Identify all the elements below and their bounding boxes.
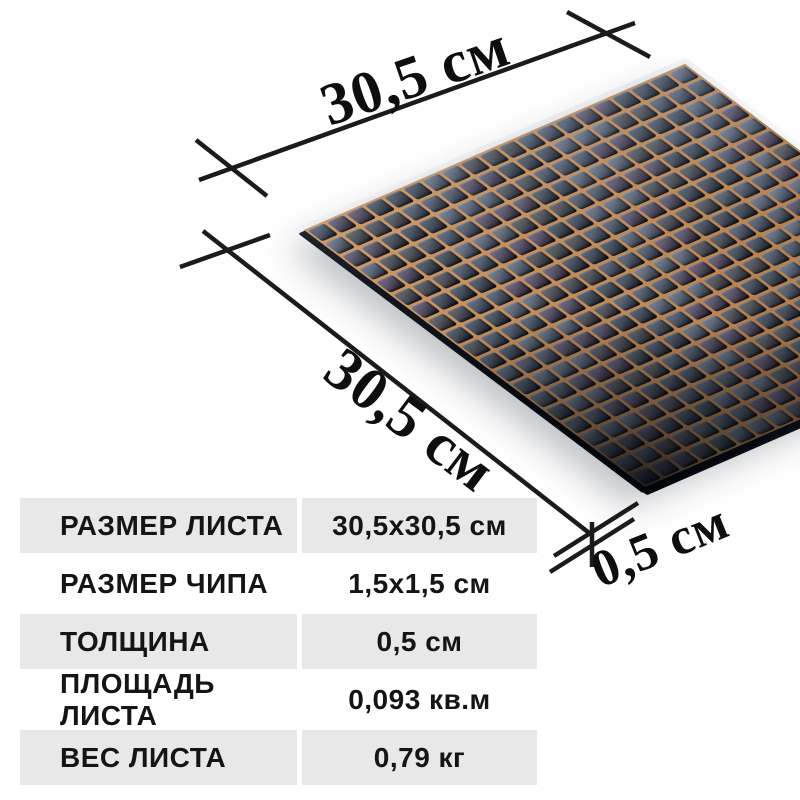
spec-value-sheet-area: 0,093 кв.м [302, 672, 537, 727]
table-row: ПЛОЩАДЬ ЛИСТА 0,093 кв.м [20, 672, 537, 727]
table-row: РАЗМЕР ЛИСТА 30,5x30,5 см [20, 498, 537, 553]
spec-table: РАЗМЕР ЛИСТА 30,5x30,5 см РАЗМЕР ЧИПА 1,… [20, 498, 537, 788]
spec-label-sheet-size: РАЗМЕР ЛИСТА [20, 498, 297, 553]
thickness-dimension-label: 0,5 см [583, 492, 737, 600]
product-image: 30,5 см 30,5 см 0,5 см РАЗМЕР ЛИСТА 30,5… [0, 0, 800, 800]
spec-value-sheet-weight: 0,79 кг [302, 730, 537, 785]
spec-label-chip-size: РАЗМЕР ЧИПА [20, 556, 297, 611]
top-dimension-tick-end [567, 12, 650, 57]
spec-value-thickness: 0,5 см [302, 614, 537, 669]
table-row: РАЗМЕР ЧИПА 1,5x1,5 см [20, 556, 537, 611]
side-dimension-tick-start [180, 235, 270, 267]
top-dimension-label: 30,5 см [312, 12, 518, 141]
spec-label-sheet-weight: ВЕС ЛИСТА [20, 730, 297, 785]
spec-value-chip-size: 1,5x1,5 см [302, 556, 537, 611]
spec-value-sheet-size: 30,5x30,5 см [302, 498, 537, 553]
top-dimension-tick-start [196, 140, 267, 196]
table-row: ВЕС ЛИСТА 0,79 кг [20, 730, 537, 785]
table-row: ТОЛЩИНА 0,5 см [20, 614, 537, 669]
spec-label-thickness: ТОЛЩИНА [20, 614, 297, 669]
spec-label-sheet-area: ПЛОЩАДЬ ЛИСТА [20, 672, 297, 727]
